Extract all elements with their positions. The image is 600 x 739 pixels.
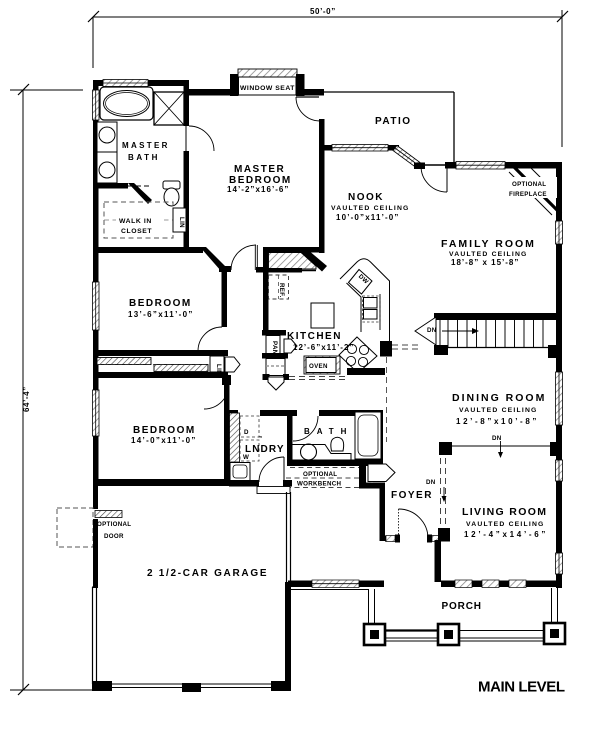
svg-text:18’-8” x 15’-8”: 18’-8” x 15’-8” bbox=[451, 258, 519, 267]
svg-text:10’-0”x11’-0”: 10’-0”x11’-0” bbox=[336, 213, 399, 222]
svg-text:VAULTED CEILING: VAULTED CEILING bbox=[449, 251, 528, 258]
svg-text:50’-0”: 50’-0” bbox=[310, 7, 336, 16]
svg-text:LIN: LIN bbox=[178, 217, 185, 228]
svg-text:BEDROOM: BEDROOM bbox=[133, 425, 196, 436]
svg-text:KITCHEN: KITCHEN bbox=[287, 331, 342, 342]
svg-text:PORCH: PORCH bbox=[442, 601, 483, 612]
svg-text:DOOR: DOOR bbox=[104, 533, 124, 540]
svg-text:OPTIONAL: OPTIONAL bbox=[97, 521, 131, 528]
svg-text:VAULTED CEILING: VAULTED CEILING bbox=[331, 205, 410, 212]
svg-text:LNDRY: LNDRY bbox=[245, 444, 285, 455]
svg-text:OVEN: OVEN bbox=[309, 363, 328, 370]
svg-text:PAN: PAN bbox=[271, 341, 278, 355]
svg-text:14’-0”x11’-0”: 14’-0”x11’-0” bbox=[131, 436, 196, 445]
svg-text:MASTER: MASTER bbox=[234, 164, 285, 175]
svg-text:DN: DN bbox=[427, 327, 437, 334]
svg-text:VAULTED CEILING: VAULTED CEILING bbox=[466, 521, 545, 528]
svg-text:MASTER: MASTER bbox=[122, 141, 168, 150]
svg-text:13’-6”x11’-0”: 13’-6”x11’-0” bbox=[128, 310, 193, 319]
svg-text:2 1/2-CAR GARAGE: 2 1/2-CAR GARAGE bbox=[147, 568, 268, 579]
svg-text:W: W bbox=[243, 454, 249, 461]
svg-text:D: D bbox=[244, 429, 249, 436]
svg-text:VAULTED CEILING: VAULTED CEILING bbox=[459, 407, 538, 414]
svg-text:FOYER: FOYER bbox=[391, 490, 433, 501]
svg-text:WINDOW SEAT: WINDOW SEAT bbox=[240, 85, 295, 92]
svg-text:FIREPLACE: FIREPLACE bbox=[509, 191, 547, 198]
svg-text:CLOSET: CLOSET bbox=[121, 228, 152, 235]
svg-text:WALK IN: WALK IN bbox=[119, 218, 152, 225]
svg-text:WORKBENCH: WORKBENCH bbox=[297, 481, 342, 488]
svg-text:DINING ROOM: DINING ROOM bbox=[452, 392, 546, 404]
svg-text:LIVING ROOM: LIVING ROOM bbox=[462, 506, 548, 518]
svg-text:DN: DN bbox=[492, 435, 502, 442]
svg-text:FAMILY ROOM: FAMILY ROOM bbox=[441, 238, 536, 250]
svg-text:12’-6”x11’-2”: 12’-6”x11’-2” bbox=[293, 343, 354, 352]
svg-text:OPTIONAL: OPTIONAL bbox=[303, 471, 337, 478]
svg-text:REF.: REF. bbox=[278, 283, 285, 298]
svg-text:LIN.: LIN. bbox=[215, 364, 222, 377]
svg-text:BEDROOM: BEDROOM bbox=[129, 298, 192, 309]
svg-text:PATIO: PATIO bbox=[375, 116, 412, 127]
svg-text:DN: DN bbox=[426, 479, 436, 486]
svg-text:MAIN LEVEL: MAIN LEVEL bbox=[478, 679, 565, 696]
svg-text:64’-4”: 64’-4” bbox=[22, 386, 31, 412]
svg-text:OPTIONAL: OPTIONAL bbox=[512, 181, 546, 188]
svg-text:14’-2”x16’-6”: 14’-2”x16’-6” bbox=[227, 185, 289, 194]
svg-text:NOOK: NOOK bbox=[348, 192, 384, 203]
